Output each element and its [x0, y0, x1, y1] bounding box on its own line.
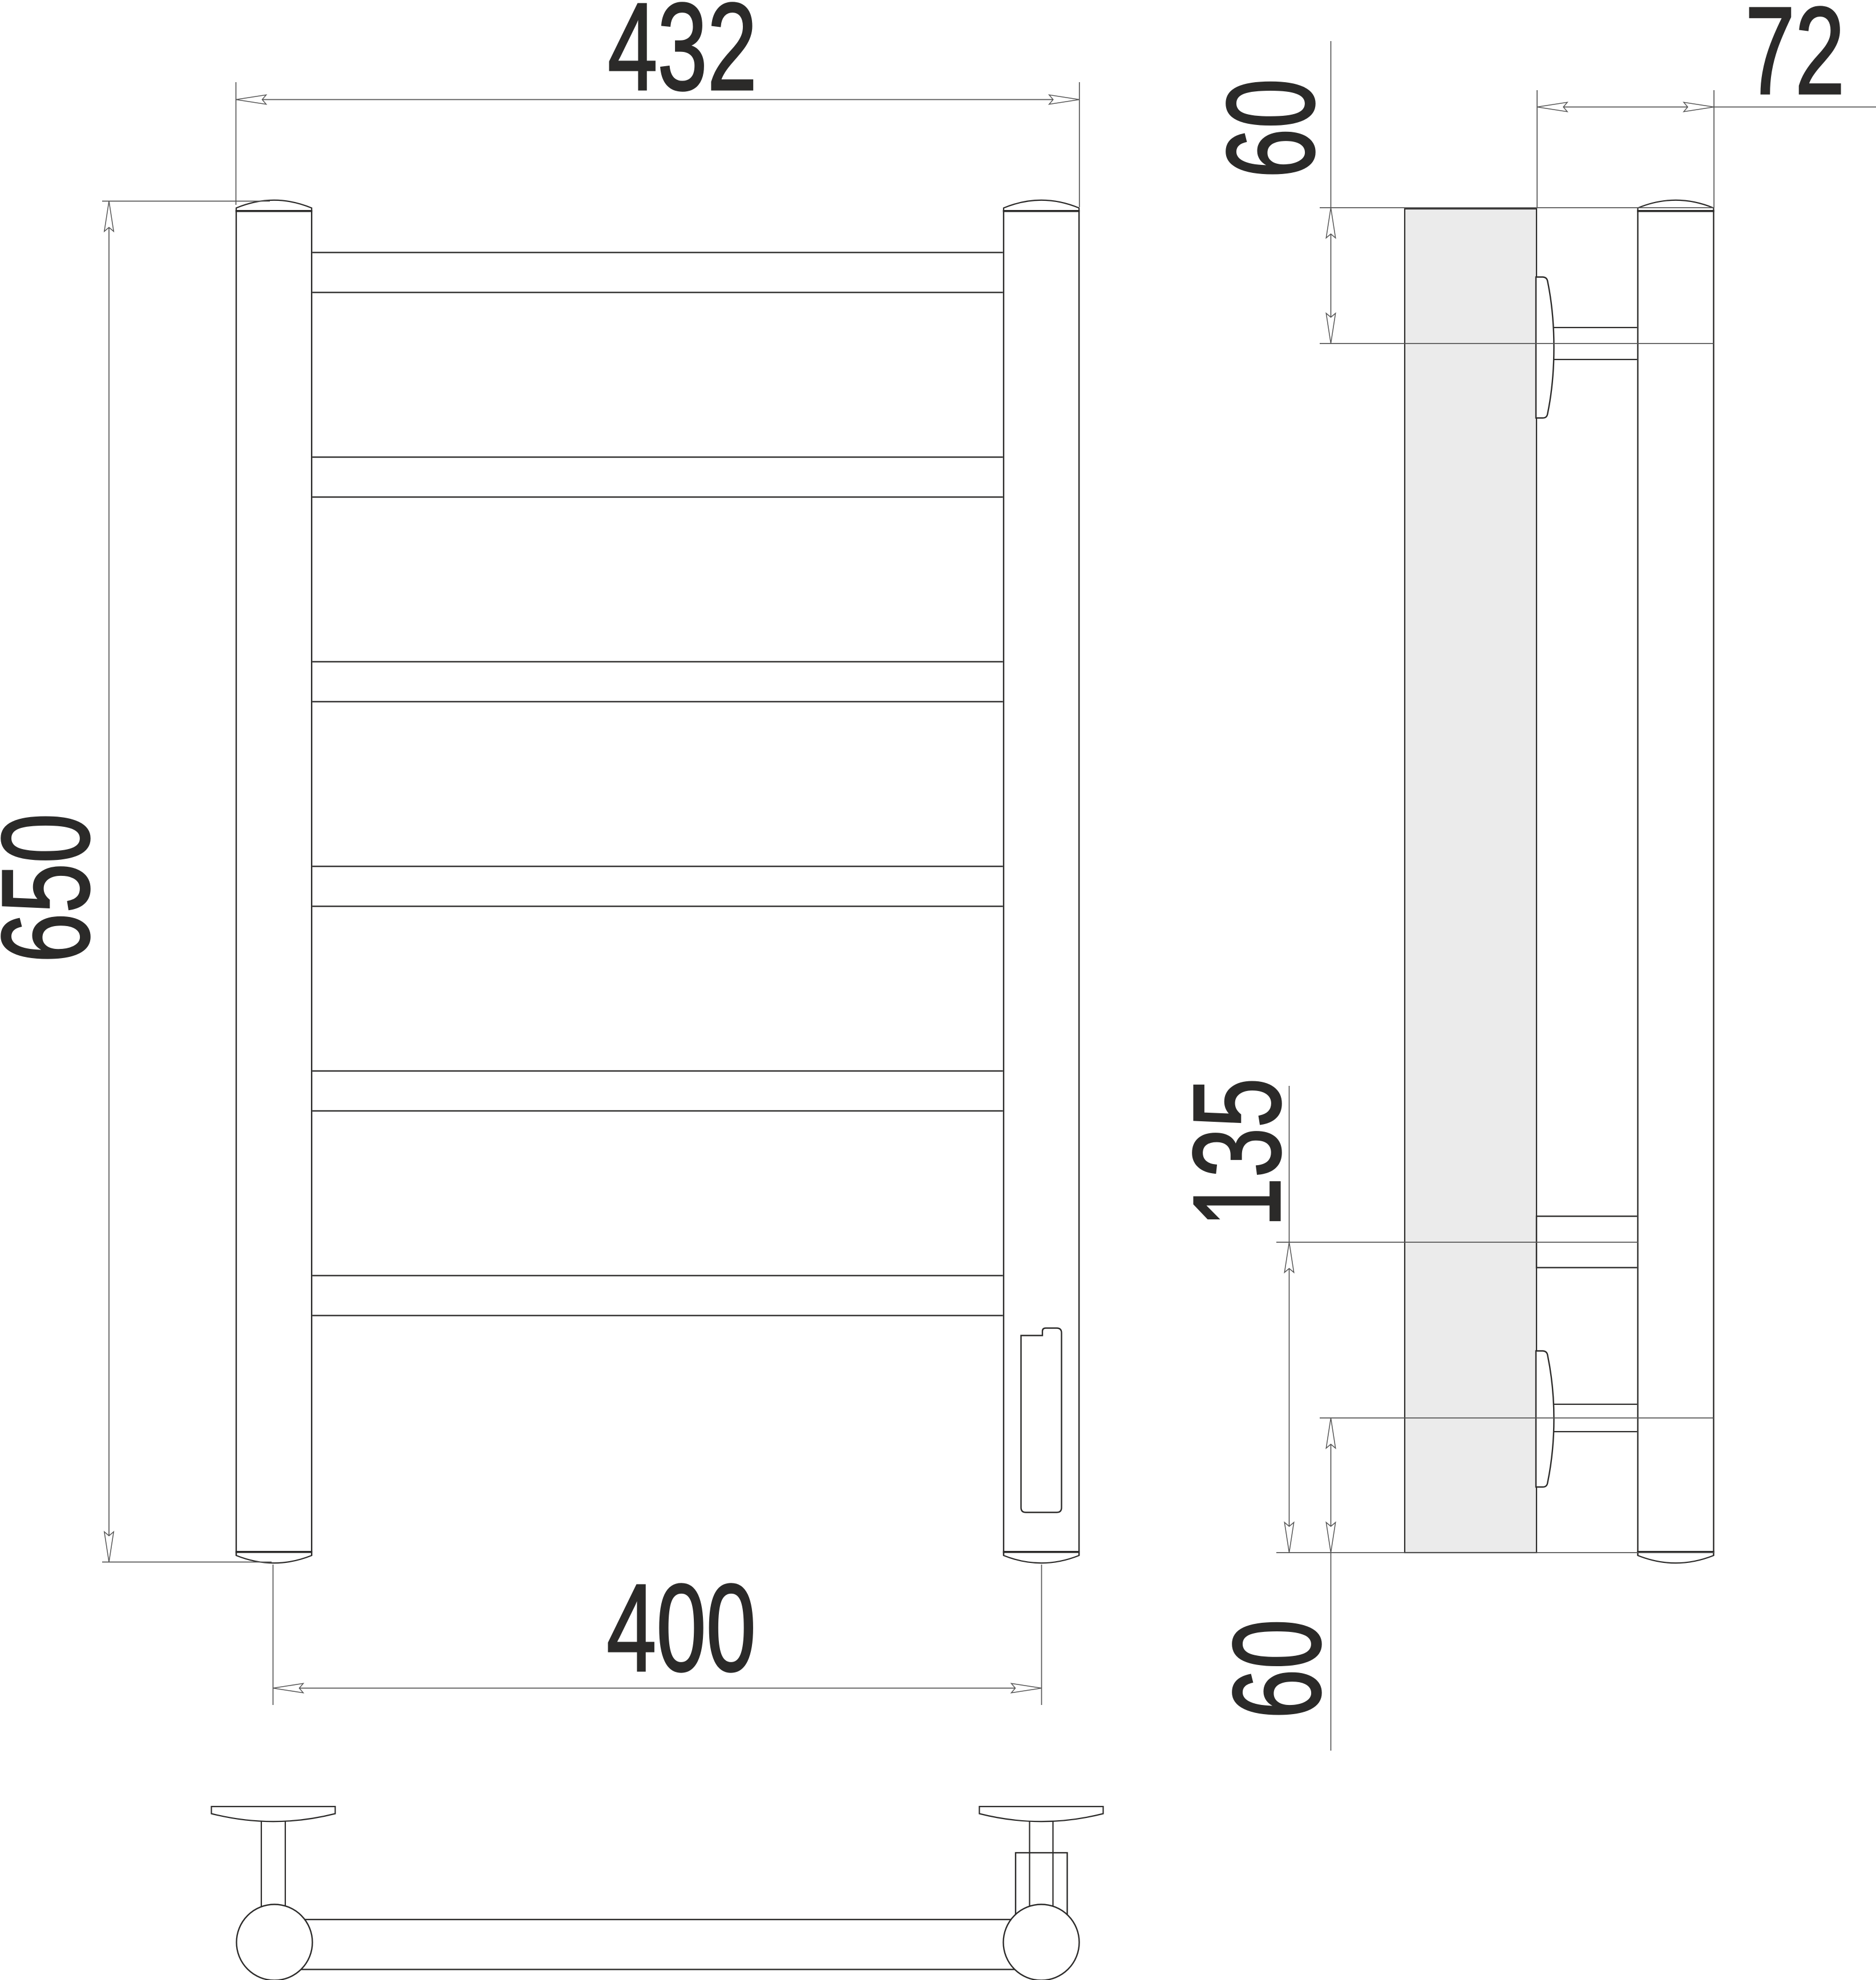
- svg-text:400: 400: [607, 1559, 756, 1698]
- svg-text:72: 72: [1745, 0, 1845, 120]
- svg-text:135: 135: [1168, 1078, 1307, 1227]
- svg-text:60: 60: [1208, 1619, 1347, 1719]
- svg-text:60: 60: [1202, 79, 1340, 179]
- svg-text:650: 650: [0, 814, 115, 963]
- svg-text:432: 432: [608, 0, 757, 116]
